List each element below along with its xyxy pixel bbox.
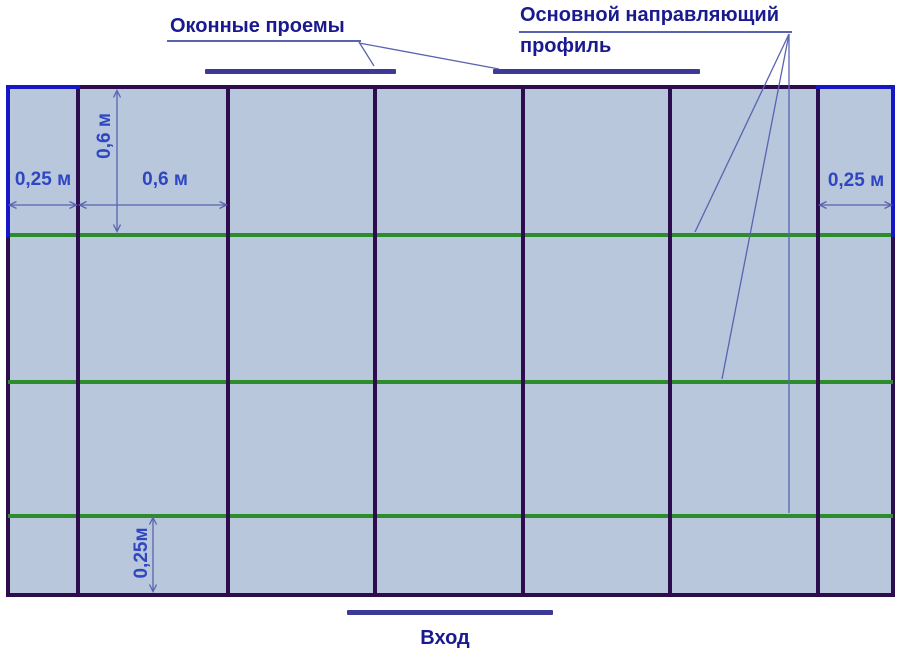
vertical-profile-line (373, 85, 377, 597)
vertical-profile-line (668, 85, 672, 597)
leader-window-opening-2 (359, 43, 499, 69)
dimension-bottom-margin: 0,25м (131, 527, 153, 578)
entrance-label: Вход (385, 626, 505, 651)
guide-profile-line (8, 380, 893, 384)
framing-plan-diagram: Оконные проемы Основной направляющий про… (0, 0, 900, 655)
blue-edge-right (891, 85, 895, 237)
dimension-right-margin: 0,25 м (818, 170, 894, 192)
blue-edge-top-right (816, 85, 895, 89)
dimension-left-margin: 0,25 м (8, 169, 78, 191)
main-profile-label-line2: профиль (520, 34, 611, 59)
window-openings-underline (167, 40, 361, 42)
vertical-profile-line (521, 85, 525, 597)
dimension-column-width: 0,6 м (120, 169, 210, 191)
window-opening-bar-2 (493, 69, 700, 74)
window-openings-label: Оконные проемы (170, 14, 345, 39)
leader-window-opening-1 (359, 42, 374, 66)
blue-edge-left (6, 85, 10, 237)
guide-profile-line (8, 514, 893, 518)
entrance-bar (347, 610, 553, 615)
plan-grid (6, 85, 895, 597)
vertical-profile-line (226, 85, 230, 597)
main-profile-label-line1: Основной направляющий (520, 3, 779, 28)
guide-profile-line (8, 233, 893, 237)
dimension-row-height: 0,6 м (94, 113, 116, 159)
blue-edge-top-left (6, 85, 80, 89)
main-profile-underline (519, 31, 792, 33)
window-opening-bar-1 (205, 69, 396, 74)
vertical-profile-line (816, 85, 820, 597)
vertical-profile-line (76, 85, 80, 597)
